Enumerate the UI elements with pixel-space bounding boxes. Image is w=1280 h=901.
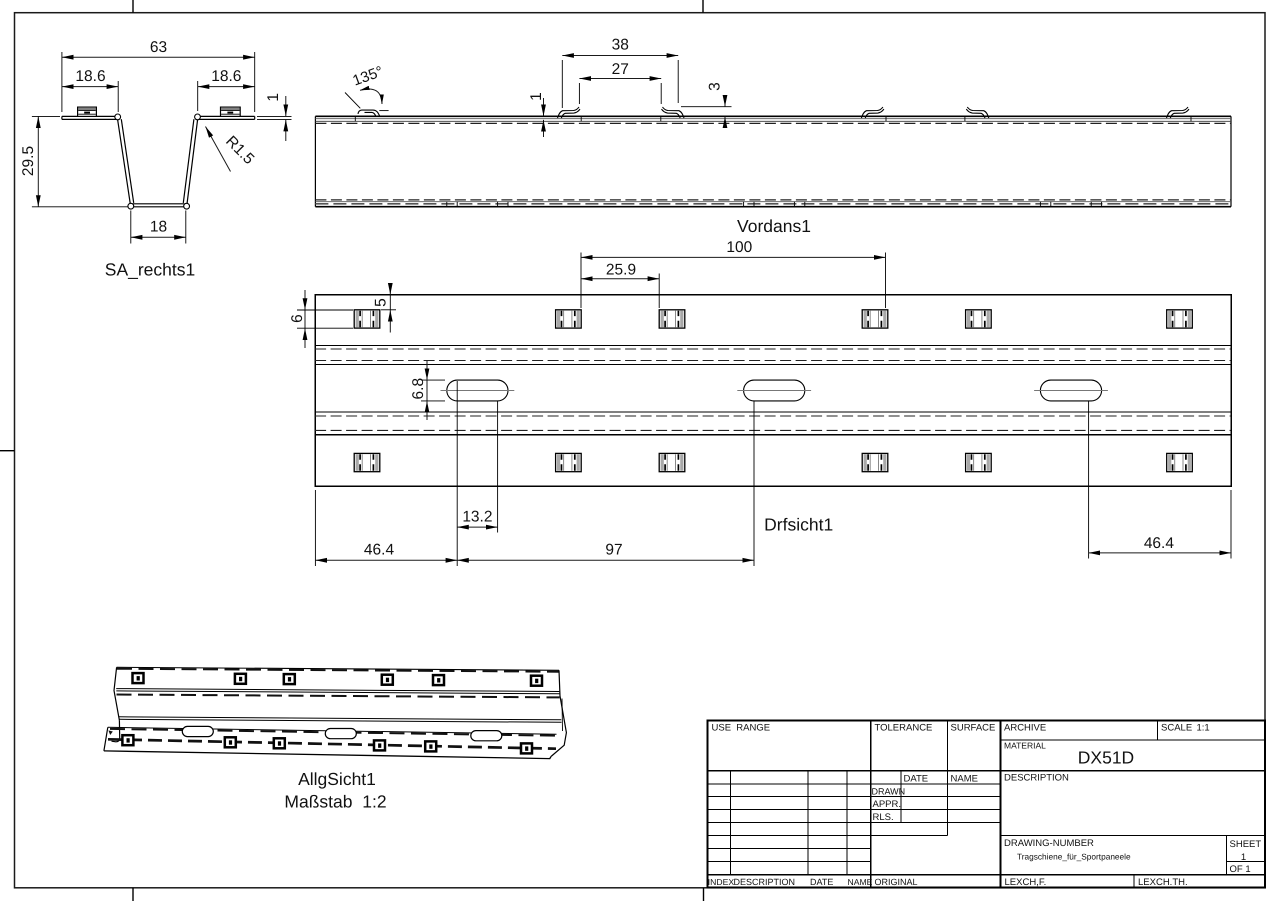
svg-text:Vordans1: Vordans1 (737, 216, 811, 236)
svg-text:TOLERANCE: TOLERANCE (875, 723, 933, 734)
svg-text:DESCRIPTION: DESCRIPTION (1004, 773, 1069, 784)
svg-text:AllgSicht1: AllgSicht1 (298, 769, 376, 789)
svg-text:OF 1: OF 1 (1230, 864, 1251, 875)
svg-text:6: 6 (289, 314, 306, 323)
svg-text:25.9: 25.9 (606, 262, 636, 279)
svg-text:Maßstab 1:2: Maßstab 1:2 (284, 792, 386, 812)
svg-text:DX51D: DX51D (1078, 748, 1134, 768)
svg-text:13.2: 13.2 (462, 508, 492, 525)
svg-text:Drfsicht1: Drfsicht1 (764, 515, 833, 535)
svg-text:APPR.: APPR. (873, 799, 902, 810)
svg-text:Tragschiene_für_Sportpaneele: Tragschiene_für_Sportpaneele (1017, 852, 1131, 862)
svg-text:DRAWING-NUMBER: DRAWING-NUMBER (1004, 838, 1094, 849)
svg-text:1: 1 (265, 93, 282, 102)
svg-text:38: 38 (612, 37, 629, 54)
svg-text:MATERIAL: MATERIAL (1004, 741, 1046, 751)
svg-text:1:1: 1:1 (1197, 723, 1210, 734)
svg-text:LEXCH,F.: LEXCH,F. (1005, 877, 1047, 888)
svg-text:SA_rechts1: SA_rechts1 (105, 260, 195, 280)
svg-text:18: 18 (150, 219, 167, 236)
svg-text:63: 63 (150, 39, 167, 56)
svg-text:6.8: 6.8 (410, 378, 427, 400)
svg-text:97: 97 (605, 542, 622, 559)
svg-text:INDEX: INDEX (708, 877, 735, 887)
svg-text:LEXCH.TH.: LEXCH.TH. (1138, 877, 1188, 888)
svg-text:46.4: 46.4 (364, 542, 395, 559)
svg-text:NAME: NAME (848, 877, 873, 887)
svg-text:46.4: 46.4 (1144, 535, 1175, 552)
svg-text:1: 1 (528, 92, 545, 101)
svg-text:27: 27 (612, 61, 629, 78)
svg-text:NAME: NAME (951, 774, 978, 785)
svg-text:DATE: DATE (904, 774, 929, 785)
svg-text:RLS.: RLS. (873, 812, 894, 823)
svg-text:100: 100 (726, 239, 752, 256)
svg-text:DATE: DATE (810, 877, 833, 887)
svg-text:SCALE: SCALE (1161, 723, 1192, 734)
svg-text:SHEET: SHEET (1230, 839, 1262, 850)
svg-text:DESCRIPTION: DESCRIPTION (734, 877, 796, 887)
svg-text:SURFACE: SURFACE (951, 723, 996, 734)
svg-text:DRAWN: DRAWN (872, 787, 906, 797)
svg-text:18.6: 18.6 (75, 68, 105, 85)
svg-text:5: 5 (373, 298, 390, 307)
svg-text:1: 1 (1241, 852, 1246, 863)
svg-text:ARCHIVE: ARCHIVE (1004, 723, 1046, 734)
svg-text:ORIGINAL: ORIGINAL (875, 877, 918, 887)
svg-text:29.5: 29.5 (20, 146, 37, 176)
svg-text:18.6: 18.6 (211, 68, 241, 85)
svg-text:3: 3 (707, 82, 724, 91)
svg-text:USE RANGE: USE RANGE (712, 723, 771, 734)
